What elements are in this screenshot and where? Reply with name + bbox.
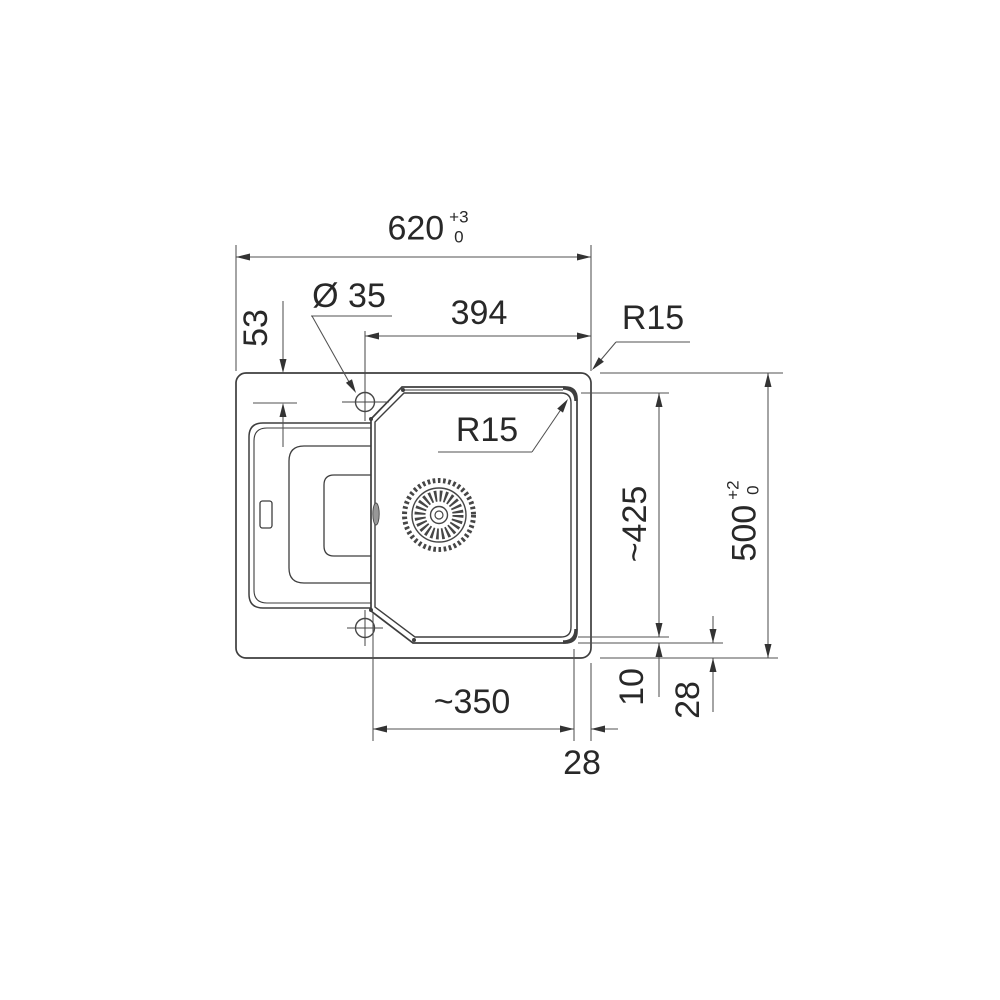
arrow: [656, 643, 663, 657]
dim-rim-width-label: 10: [615, 668, 649, 706]
radius-bowl-corner-label: R15: [456, 413, 518, 447]
dim-bowl-to-edge-right-label: 28: [563, 746, 601, 780]
bowl-chamfer-joint: [369, 608, 373, 612]
dim-bowl-length-value: ~425: [618, 486, 652, 563]
dim-overall-width-value: 620: [387, 211, 444, 245]
dim-overall-depth-label: 500 +2 0: [726, 480, 763, 561]
dim-faucet-offset-value: 53: [239, 309, 273, 347]
faucet-diameter-label: Ø 35: [312, 279, 386, 313]
arrow: [577, 333, 591, 340]
dim-rim-width-value: 10: [615, 668, 649, 706]
bowl-chamfer-joint: [412, 638, 416, 642]
arrow: [280, 359, 287, 373]
radius-outer-corner-value: R15: [622, 301, 684, 335]
tolerance-upper: +3: [449, 209, 468, 226]
arrow: [710, 658, 717, 672]
dim-faucet-offset-label: 53: [239, 309, 273, 347]
arrow: [365, 333, 379, 340]
faucet-diameter-value: Ø 35: [312, 279, 386, 313]
arrow: [373, 726, 387, 733]
arrow: [577, 254, 591, 261]
arrow: [656, 623, 663, 637]
radius-bowl-corner-value: R15: [456, 413, 518, 447]
dim-bowl-length-label: ~425: [618, 486, 652, 563]
dim-rim-to-edge-bottom-label: 28: [671, 681, 705, 719]
arrow: [236, 254, 250, 261]
arrow: [765, 373, 772, 387]
arrow: [656, 393, 663, 407]
dim-overall-width-label: 620 +3 0: [387, 210, 468, 247]
dim-overall-depth-tolerance: +2 0: [725, 480, 762, 499]
drawing-geometry: [0, 0, 1000, 1000]
tolerance-upper: +2: [725, 480, 742, 499]
dim-rim-to-edge-bottom-value: 28: [671, 681, 705, 719]
dim-bowl-top-width-label: 394: [451, 296, 508, 330]
bowl-chamfer-joint: [369, 417, 373, 421]
tolerance-lower: 0: [454, 229, 463, 246]
tolerance-lower: 0: [745, 485, 762, 494]
arrow: [591, 726, 605, 733]
dim-bowl-bottom-width-label: ~350: [434, 685, 511, 719]
dim-bowl-bottom-width-value: ~350: [434, 685, 511, 719]
dim-overall-depth-value: 500: [727, 505, 761, 562]
arrow: [765, 644, 772, 658]
arrow: [560, 726, 574, 733]
arrow: [710, 629, 717, 643]
dim-overall-width-tolerance: +3 0: [449, 209, 468, 246]
dim-bowl-to-edge-right-value: 28: [563, 746, 601, 780]
bowl-overflow-mark: [373, 503, 379, 525]
sink-technical-drawing: 620 +3 0 Ø 35 394 53 R15 R15 ~425 500 +2…: [0, 0, 1000, 1000]
radius-outer-corner-label: R15: [622, 301, 684, 335]
dim-bowl-top-width-value: 394: [451, 296, 508, 330]
bowl-chamfer-joint: [401, 388, 405, 392]
